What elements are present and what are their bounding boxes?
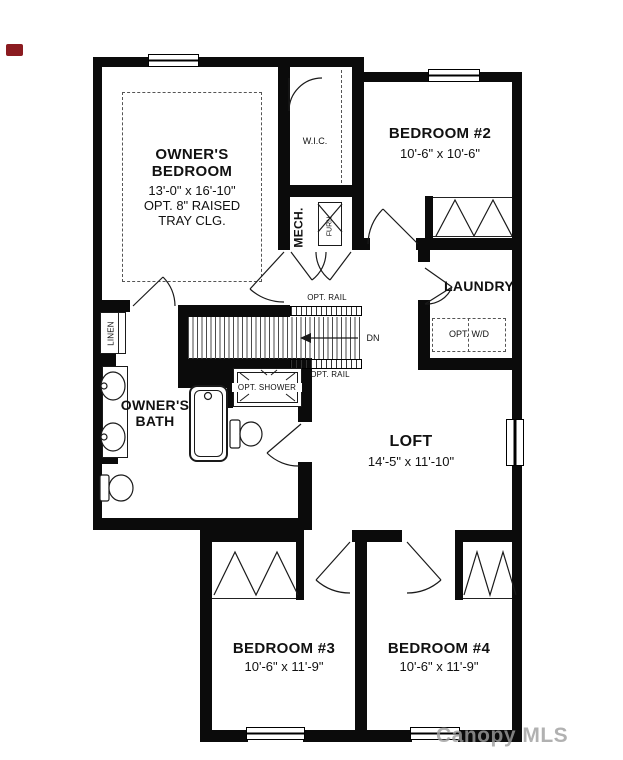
bedroom4-dims: 10'-6" x 11'-9"	[359, 659, 519, 674]
opt-rail-top-label: OPT. RAIL	[287, 293, 367, 302]
tub-faucet	[205, 393, 212, 400]
opt-wd-label: OPT. W/D	[429, 329, 509, 339]
linen-label: LINEN	[107, 312, 116, 356]
bedroom4-door-arc	[407, 580, 441, 593]
toilet-wc-bowl	[109, 475, 133, 501]
bedroom4-closet-bifold	[464, 552, 516, 595]
opt-shower-label: OPT. SHOWER	[232, 383, 302, 392]
owners-bedroom-door-leaf	[250, 252, 284, 289]
wic-door-arc	[289, 78, 322, 111]
owners-bedroom-opt-line1: OPT. 8" RAISED	[112, 198, 272, 213]
floor-plan: OWNER'S BEDROOM 13'-0" x 16'-10" OPT. 8"…	[0, 0, 623, 760]
owners-bedroom-label-line1: OWNER'S	[112, 147, 272, 162]
mls-watermark: Canopy MLS	[436, 724, 568, 748]
furn-label: FURN	[323, 205, 338, 249]
hall-door-leaf	[133, 277, 163, 306]
owners-bedroom-opt-line2: TRAY CLG.	[112, 213, 272, 228]
bedroom2-dims: 10'-6" x 10'-6"	[360, 146, 520, 161]
owners-bedroom-label-line2: BEDROOM	[112, 164, 272, 179]
bedroom4-label: BEDROOM #4	[359, 641, 519, 656]
owners-bedroom-door-arc	[250, 289, 284, 302]
hall-door-arc	[163, 277, 175, 306]
bedroom2-door-arc	[368, 209, 383, 244]
bedroom2-label: BEDROOM #2	[360, 126, 520, 141]
stairs-arrow-head	[300, 333, 311, 343]
owners-bedroom-dims: 13'-0" x 16'-10"	[112, 183, 272, 198]
loft-dims: 14'-5" x 11'-10"	[351, 454, 471, 469]
bedroom3-door-arc	[316, 580, 350, 593]
bath-door-leaf	[267, 424, 301, 453]
mls-brand-mark	[6, 44, 23, 56]
bedroom2-closet-bifold	[436, 200, 512, 236]
wic-label: W.I.C.	[275, 136, 355, 146]
bedroom3-label: BEDROOM #3	[204, 641, 364, 656]
vanity-sink-1-faucet	[101, 383, 107, 389]
bedroom3-closet-bifold	[214, 552, 298, 595]
mech-door-leaf-r	[330, 252, 351, 280]
opt-rail-bottom-label: OPT. RAIL	[290, 370, 370, 379]
owners-bath-label-line1: OWNER'S	[105, 398, 205, 413]
bedroom2-door-leaf	[383, 209, 418, 244]
bedroom4-door-leaf	[407, 542, 441, 580]
toilet-bowl	[240, 422, 262, 446]
toilet-wc-tank	[100, 475, 109, 501]
loft-label: LOFT	[351, 434, 471, 449]
bedroom3-door-leaf	[316, 542, 350, 580]
mech-label: MECH.	[292, 198, 307, 258]
toilet-tank	[230, 420, 240, 448]
bedroom3-dims: 10'-6" x 11'-9"	[204, 659, 364, 674]
owners-bath-label-line2: BATH	[105, 414, 205, 429]
vanity-sink-2-faucet	[101, 434, 107, 440]
laundry-label: LAUNDRY	[419, 279, 539, 294]
dn-label: DN	[358, 333, 388, 343]
bath-door-arc	[267, 453, 300, 466]
